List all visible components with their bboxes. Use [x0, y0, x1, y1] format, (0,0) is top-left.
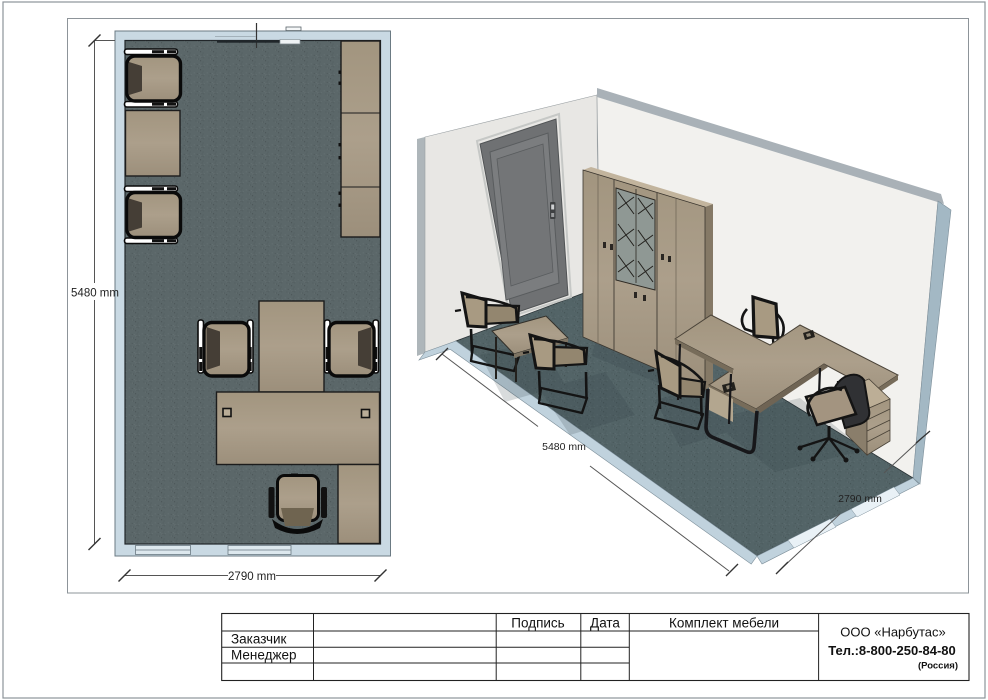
svg-text:Комплект мебели: Комплект мебели	[669, 616, 779, 631]
svg-text:ООО «Нарбутас»: ООО «Нарбутас»	[840, 625, 945, 640]
svg-text:Дата: Дата	[590, 616, 620, 631]
svg-text:(Россия): (Россия)	[918, 661, 958, 672]
svg-text:5480 mm: 5480 mm	[542, 441, 586, 453]
svg-text:2790 mm: 2790 mm	[228, 571, 276, 583]
svg-text:Менеджер: Менеджер	[231, 648, 297, 663]
svg-text:Подпись: Подпись	[511, 616, 564, 631]
svg-text:5480 mm: 5480 mm	[71, 288, 119, 300]
svg-text:Тел.:8-800-250-84-80: Тел.:8-800-250-84-80	[828, 643, 956, 658]
svg-text:2790 mm: 2790 mm	[838, 493, 882, 505]
svg-text:Заказчик: Заказчик	[231, 632, 287, 647]
